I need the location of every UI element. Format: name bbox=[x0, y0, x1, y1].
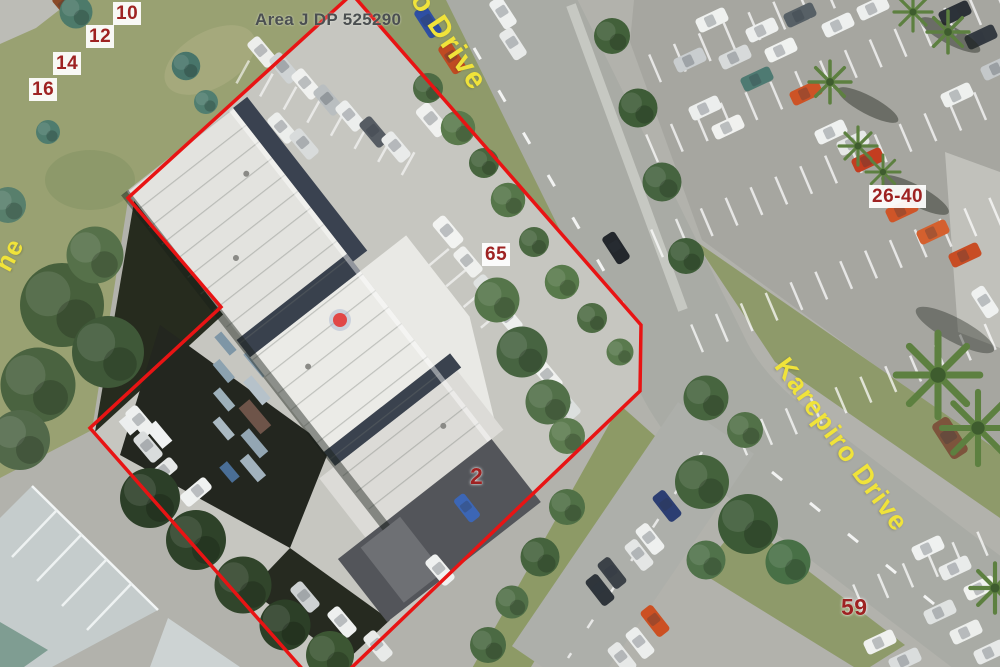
aerial-imagery bbox=[0, 0, 1000, 667]
map-canvas[interactable]: Area J DP 525290 101214166526-40259ro Dr… bbox=[0, 0, 1000, 667]
selected-point-marker bbox=[329, 309, 351, 331]
